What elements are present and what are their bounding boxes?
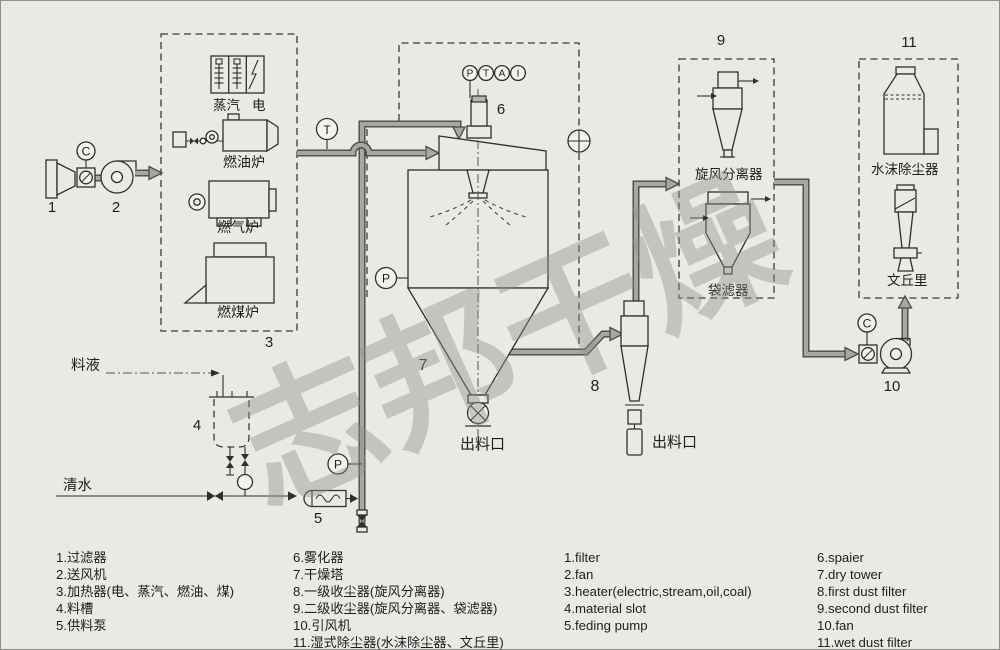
- legend: 1.过滤器 2.送风机 3.加热器(电、蒸汽、燃油、煤) 4.料槽 5.供料泵 …: [56, 550, 928, 650]
- label-10: 10: [884, 378, 901, 395]
- fan-to-box11-pipe: [899, 296, 912, 341]
- t-gauge: T: [317, 119, 338, 150]
- legend-item: 7.dry tower: [817, 567, 883, 582]
- supply-fan: [101, 161, 136, 193]
- legend-item: 11.湿式除尘器(水沫除尘器、文丘里): [293, 635, 504, 650]
- legend-item: 3.heater(electric,stream,oil,coal): [564, 584, 752, 599]
- label-oil-furnace: 燃油炉: [223, 154, 265, 170]
- label-gas-furnace: 燃气炉: [217, 219, 259, 235]
- legend-item: 10.引风机: [293, 618, 351, 633]
- label-9: 9: [717, 32, 725, 49]
- legend-item: 4.料槽: [56, 601, 93, 616]
- legend-item: 9.二级收尘器(旋风分离器、袋滤器): [293, 600, 497, 616]
- hot-air-pipe: [297, 145, 439, 160]
- p-gauge-tower: P: [376, 268, 409, 289]
- legend-item: 7.干燥塔: [293, 567, 344, 582]
- label-2: 2: [112, 199, 120, 216]
- sight-glass-icon: [568, 130, 590, 152]
- diagram-canvas: C 1 2 蒸汽 电 燃油: [1, 1, 1000, 650]
- label-11: 11: [901, 34, 917, 51]
- label-coal-furnace: 燃煤炉: [217, 304, 259, 320]
- label-cyclone-outlet: 出料口: [652, 434, 697, 451]
- label-venturi: 文丘里: [887, 273, 928, 288]
- legend-item: 2.送风机: [56, 567, 107, 582]
- label-clean-water: 清水: [63, 477, 92, 494]
- legend-item: 2.fan: [564, 567, 593, 582]
- legend-item: 8.一级收尘器(旋风分离器): [293, 583, 445, 599]
- air-distributor: [439, 136, 546, 170]
- label-water-mist: 水沫除尘器: [871, 162, 939, 177]
- material-feed-line: [106, 370, 223, 398]
- legend-item: 8.first dust filter: [817, 584, 907, 599]
- coal-furnace: [185, 243, 274, 303]
- legend-item: 6.雾化器: [293, 550, 344, 565]
- outlet-valve: C: [858, 314, 877, 363]
- legend-item: 9.second dust filter: [817, 601, 928, 616]
- legend-item: 11.wet dust filter: [817, 635, 913, 650]
- legend-item: 10.fan: [817, 618, 854, 633]
- ptai-instruments: P T A I: [463, 66, 526, 81]
- label-3: 3: [265, 334, 273, 351]
- legend-item: 5.供料泵: [56, 618, 107, 633]
- process-flow-diagram: C 1 2 蒸汽 电 燃油: [0, 0, 1000, 650]
- label-1: 1: [48, 199, 56, 216]
- svg-text:P: P: [382, 272, 390, 286]
- label-material-liquid: 料液: [71, 357, 100, 374]
- oil-furnace: [173, 114, 278, 151]
- legend-item: 4.material slot: [564, 601, 646, 616]
- atomizer: [467, 81, 491, 138]
- electric-steam-heater: [211, 56, 264, 93]
- label-6: 6: [497, 101, 505, 118]
- legend-item: 3.加热器(电、蒸汽、燃油、煤): [56, 583, 234, 599]
- inlet-valve: C: [77, 142, 95, 187]
- feed-arrow: [453, 127, 465, 139]
- label-4: 4: [193, 417, 201, 434]
- svg-text:I: I: [517, 69, 520, 80]
- venturi-icon: [894, 185, 922, 271]
- c-gauge-inlet-label: C: [82, 145, 91, 159]
- cyclone-separator-icon: [697, 72, 759, 157]
- label-steam: 蒸汽: [213, 98, 240, 113]
- svg-text:P: P: [467, 69, 474, 80]
- air-filter: [46, 160, 75, 198]
- legend-item: 1.过滤器: [56, 550, 107, 565]
- legend-item: 1.filter: [564, 550, 601, 565]
- svg-text:T: T: [323, 123, 331, 137]
- water-mist-collector-icon: [884, 67, 938, 154]
- legend-item: 6.spaier: [817, 550, 865, 565]
- svg-text:C: C: [863, 317, 872, 331]
- induced-draft-fan: [881, 339, 912, 374]
- svg-text:A: A: [499, 69, 506, 80]
- svg-text:T: T: [483, 69, 489, 80]
- legend-item: 5.feding pump: [564, 618, 648, 633]
- label-electric: 电: [252, 98, 266, 113]
- hot-air-arrow: [426, 147, 439, 160]
